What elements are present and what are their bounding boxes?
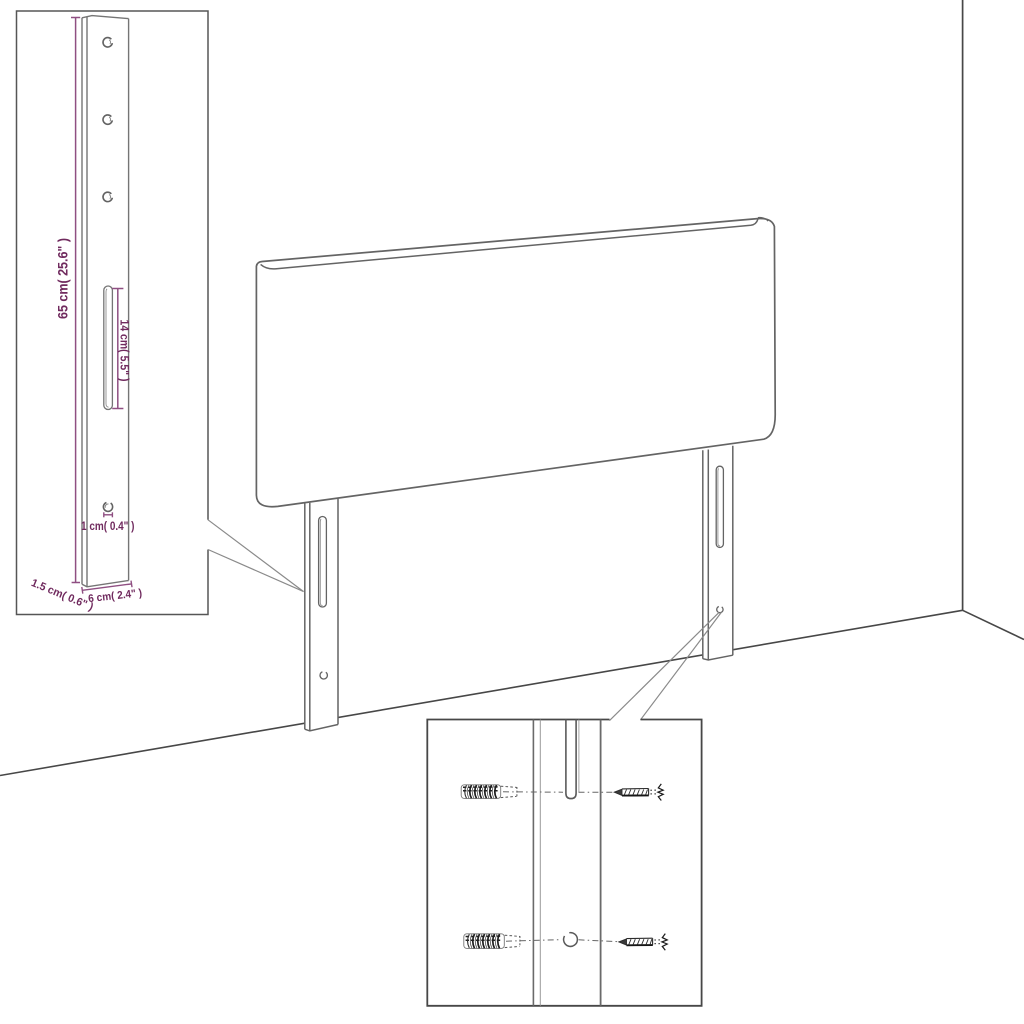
svg-text:65 cm( 25.6" ): 65 cm( 25.6" ) bbox=[55, 238, 70, 319]
svg-text:14 cm( 5.5" ): 14 cm( 5.5" ) bbox=[117, 320, 131, 382]
svg-text:1 cm( 0.4" ): 1 cm( 0.4" ) bbox=[81, 521, 135, 533]
